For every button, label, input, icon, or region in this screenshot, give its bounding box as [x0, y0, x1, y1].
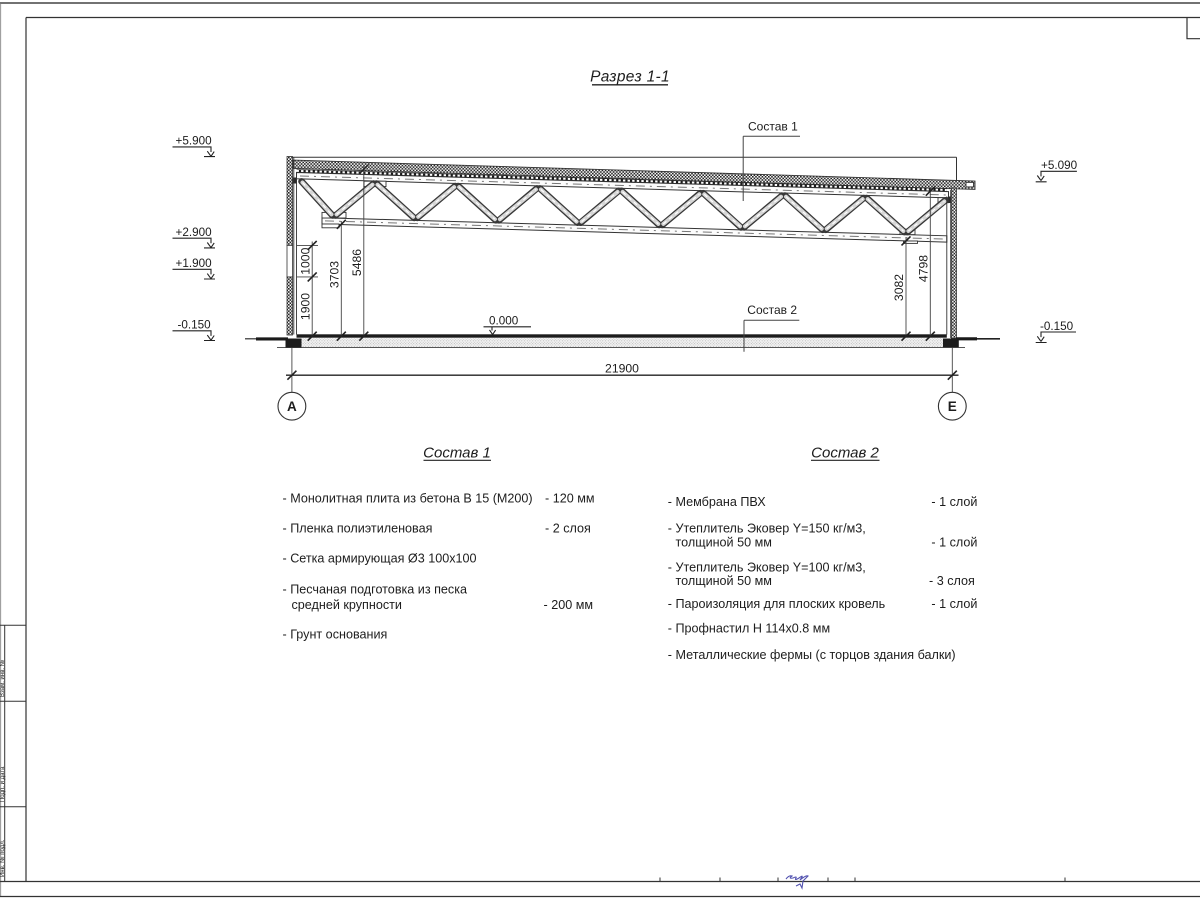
svg-text:- Утеплитель Эковер Y=150 кг/м: - Утеплитель Эковер Y=150 кг/м3, [668, 521, 866, 535]
svg-text:- Пленка полиэтиленовая: - Пленка полиэтиленовая [283, 522, 433, 536]
svg-text:Состав 2: Состав 2 [811, 445, 879, 462]
svg-text:средней крупности: средней крупности [292, 598, 402, 612]
svg-text:Инв. № подл.: Инв. № подл. [0, 839, 6, 877]
svg-text:толщиной 50 мм: толщиной 50 мм [676, 535, 772, 549]
svg-text:- 1 слой: - 1 слой [931, 495, 977, 509]
svg-text:+5.090: +5.090 [1041, 159, 1078, 172]
svg-text:Разрез 1-1: Разрез 1-1 [590, 69, 670, 86]
svg-text:- Металлические фермы (с торцо: - Металлические фермы (с торцов здания б… [668, 648, 956, 662]
svg-text:- Грунт основания: - Грунт основания [283, 628, 388, 642]
svg-text:1000: 1000 [299, 247, 313, 274]
svg-text:толщиной 50 мм: толщиной 50 мм [676, 574, 772, 588]
svg-text:Подп. и дата: Подп. и дата [0, 766, 6, 802]
svg-text:Е: Е [948, 399, 957, 414]
svg-text:+5.900: +5.900 [176, 135, 213, 148]
svg-text:Состав 1: Состав 1 [748, 120, 798, 134]
svg-text:-0.150: -0.150 [1040, 320, 1074, 333]
svg-text:- 1 слой: - 1 слой [931, 535, 977, 549]
svg-text:- 1 слой: - 1 слой [931, 597, 977, 611]
svg-text:+1.900: +1.900 [176, 257, 213, 270]
svg-text:- Монолитная плита из бетона В: - Монолитная плита из бетона В 15 (М200) [283, 492, 533, 506]
svg-text:Состав 1: Состав 1 [423, 445, 491, 462]
svg-text:А: А [287, 399, 297, 414]
svg-text:-0.150: -0.150 [178, 319, 212, 332]
svg-text:- 200 мм: - 200 мм [544, 598, 594, 612]
svg-text:3703: 3703 [328, 261, 342, 288]
svg-text:4798: 4798 [917, 255, 931, 282]
svg-text:21900: 21900 [605, 361, 639, 375]
svg-text:3082: 3082 [892, 274, 906, 301]
svg-text:- 120 мм: - 120 мм [545, 492, 595, 506]
svg-text:- Мембрана ПВХ: - Мембрана ПВХ [668, 495, 766, 509]
svg-text:- Песчаная подготовка из песка: - Песчаная подготовка из песка [283, 582, 468, 596]
svg-text:1900: 1900 [299, 293, 313, 320]
svg-text:- Пароизоляция для плоских кро: - Пароизоляция для плоских кровель [668, 597, 886, 611]
svg-text:0.000: 0.000 [489, 314, 519, 327]
svg-text:Взам. инв. №: Взам. инв. № [0, 660, 6, 697]
svg-text:- Профнастил Н 114х0.8 мм: - Профнастил Н 114х0.8 мм [668, 622, 830, 636]
svg-text:- 3 слоя: - 3 слоя [929, 574, 975, 588]
svg-text:+2.900: +2.900 [176, 226, 213, 239]
svg-text:Состав 2: Состав 2 [747, 303, 797, 317]
svg-text:- 2 слоя: - 2 слоя [545, 522, 591, 536]
svg-text:- Утеплитель Эковер Y=100 кг/м: - Утеплитель Эковер Y=100 кг/м3, [668, 561, 866, 575]
svg-text:5486: 5486 [350, 249, 364, 276]
svg-text:- Сетка армирующая Ø3 100х100: - Сетка армирующая Ø3 100х100 [283, 552, 477, 566]
